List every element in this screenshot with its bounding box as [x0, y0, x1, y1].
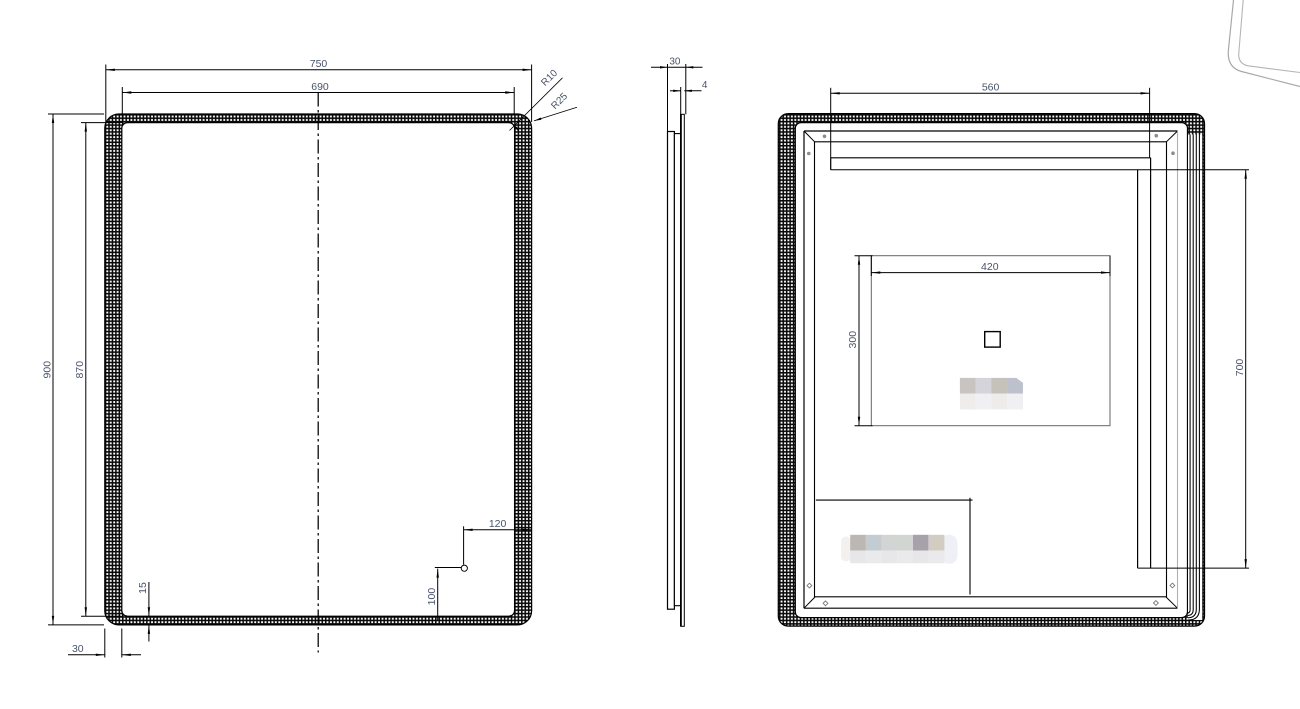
svg-text:30: 30	[72, 643, 84, 655]
svg-text:300: 300	[847, 331, 859, 349]
svg-text:420: 420	[981, 261, 999, 273]
svg-text:4: 4	[702, 80, 708, 91]
svg-text:30: 30	[669, 56, 681, 67]
svg-text:700: 700	[1234, 359, 1246, 377]
svg-text:750: 750	[310, 58, 328, 70]
svg-text:560: 560	[982, 82, 1000, 94]
svg-text:690: 690	[311, 81, 329, 93]
svg-text:900: 900	[41, 361, 53, 379]
svg-text:15: 15	[137, 582, 149, 594]
svg-text:100: 100	[426, 588, 438, 606]
svg-text:870: 870	[74, 361, 86, 379]
svg-text:120: 120	[489, 518, 507, 530]
